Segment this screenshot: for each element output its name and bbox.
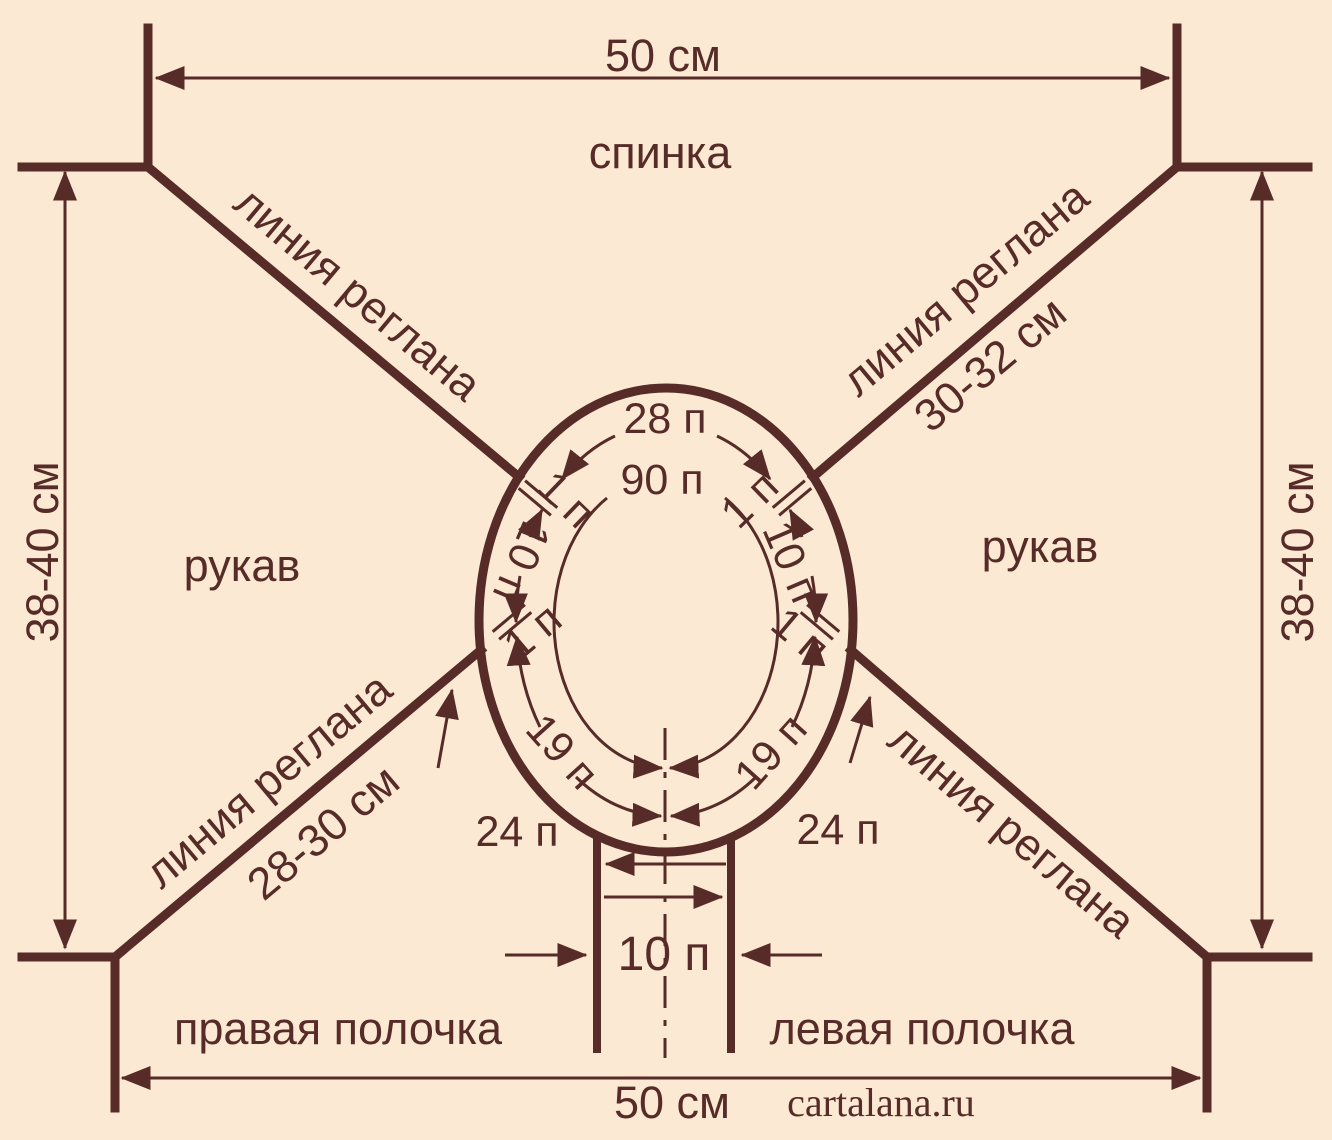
raglan-line-bottom-left [115, 650, 481, 957]
right-front-label: правая полочка [174, 1003, 503, 1054]
front-shoulder-count-left: 24 п [475, 808, 558, 856]
right-height-label: 38-40 см [1272, 461, 1323, 642]
front-shoulder-count-right: 24 п [796, 806, 879, 854]
raglan-line-top-left [148, 167, 519, 477]
bottom-right-corner-outline [1207, 957, 1308, 1108]
leader-arrow-right [850, 697, 870, 763]
knitting-pattern-diagram: 50 см спинка рукав рукав правая полочка … [0, 0, 1332, 1140]
back-neck-count: 28 п [623, 395, 706, 443]
top-width-label: 50 см [605, 30, 721, 81]
raglan-scheme-canvas: 50 см спинка рукав рукав правая полочка … [0, 0, 1332, 1140]
neck-total-count: 90 п [620, 456, 703, 504]
watermark: cartalana.ru [787, 1080, 975, 1125]
bottom-left-corner-outline [22, 957, 115, 1108]
left-height-label: 38-40 см [17, 461, 68, 642]
sleeve-left-label: рукав [184, 540, 301, 591]
left-front-label: левая полочка [770, 1003, 1076, 1054]
top-left-corner-outline [22, 28, 148, 167]
top-right-corner-outline [1177, 28, 1308, 167]
text-labels: 50 см спинка рукав рукав правая полочка … [17, 30, 1323, 1128]
raglan-label-bottom-right: линия реглана [879, 713, 1146, 949]
front-center-cut-count: 10 п [618, 928, 711, 981]
bottom-width-label: 50 см [614, 1077, 730, 1128]
sleeve-right-label: рукав [982, 521, 1099, 572]
sleeve-top-count-right: 10 п [753, 514, 830, 609]
raglan-label-top-left: линия реглана [225, 176, 492, 412]
raglan-stitch-lower-left: 1 п [495, 595, 571, 670]
leader-arrow-left [438, 690, 452, 768]
raglan-line-bottom-right [851, 650, 1207, 957]
back-label: спинка [589, 127, 733, 178]
raglan-line-top-right [813, 167, 1177, 477]
